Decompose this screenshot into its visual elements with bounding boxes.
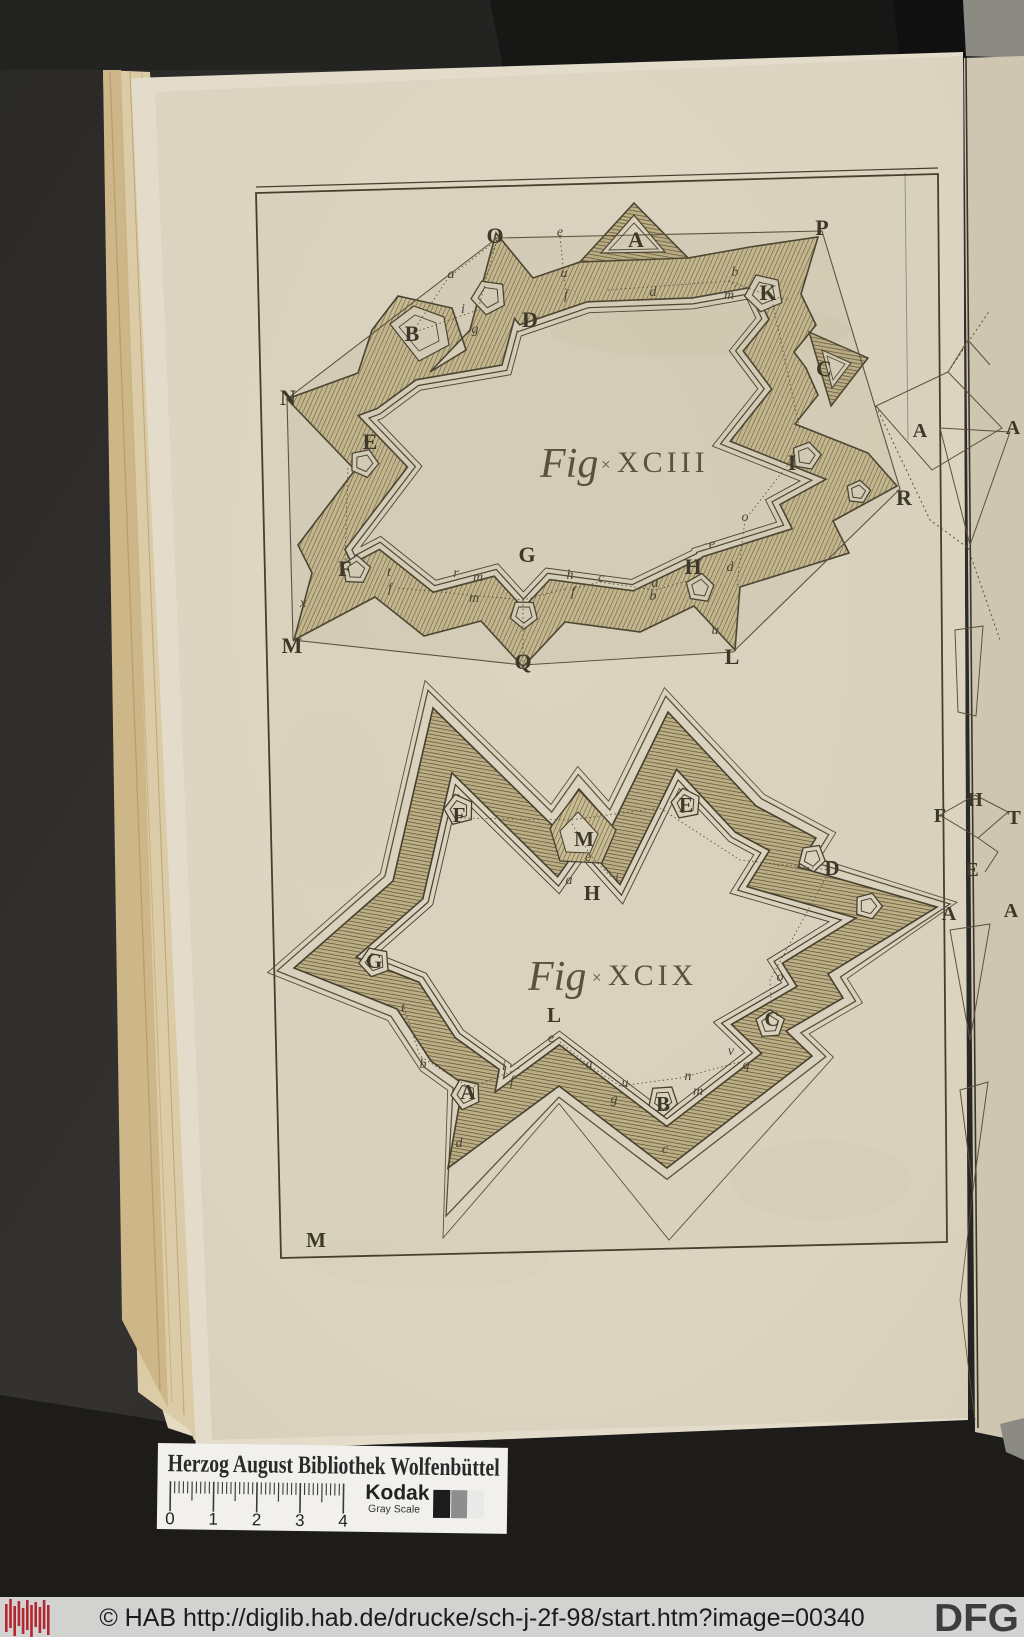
- svg-text:P: P: [815, 215, 828, 240]
- svg-text:XCIX: XCIX: [608, 959, 697, 992]
- svg-text:a: a: [586, 1057, 593, 1072]
- svg-text:H: H: [967, 789, 983, 811]
- svg-text:i: i: [502, 1059, 506, 1074]
- svg-text:b: b: [650, 589, 657, 604]
- svg-text:m: m: [724, 288, 734, 303]
- svg-text:o: o: [777, 970, 784, 985]
- svg-text:N: N: [280, 385, 296, 410]
- svg-text:b: b: [732, 265, 739, 280]
- svg-text:m: m: [469, 591, 479, 606]
- svg-text:m: m: [693, 1084, 703, 1099]
- svg-text:T: T: [1007, 807, 1021, 829]
- svg-text:A: A: [1006, 417, 1021, 439]
- svg-text:F: F: [453, 803, 466, 827]
- svg-text:i: i: [615, 871, 619, 886]
- svg-text:Gray Scale: Gray Scale: [368, 1503, 420, 1516]
- svg-text:g: g: [611, 1092, 618, 1107]
- svg-text:Q: Q: [514, 649, 531, 674]
- svg-text:G: G: [518, 542, 535, 567]
- svg-text:g: g: [472, 322, 479, 337]
- svg-text:1: 1: [208, 1510, 218, 1529]
- svg-text:c: c: [662, 1142, 669, 1157]
- svg-text:x: x: [299, 596, 307, 611]
- svg-text:H: H: [584, 881, 600, 905]
- svg-text:L: L: [725, 644, 740, 669]
- svg-text:A: A: [460, 1080, 476, 1104]
- svg-text:XCIII: XCIII: [617, 446, 709, 479]
- svg-text:E: E: [965, 859, 978, 881]
- svg-text:i: i: [461, 302, 465, 317]
- svg-text:×: ×: [592, 968, 602, 987]
- svg-text:q: q: [743, 1058, 750, 1073]
- svg-text:e: e: [557, 225, 563, 240]
- svg-text:A: A: [1004, 900, 1019, 922]
- svg-text:u: u: [561, 266, 568, 281]
- svg-text:h: h: [567, 568, 574, 583]
- svg-text:C: C: [764, 1007, 779, 1031]
- svg-text:n: n: [685, 1069, 692, 1084]
- svg-text:u: u: [712, 623, 719, 638]
- svg-text:K: K: [759, 280, 776, 305]
- svg-text:u: u: [622, 1076, 629, 1091]
- svg-text:d: d: [650, 285, 658, 300]
- svg-text:0: 0: [165, 1509, 175, 1528]
- svg-text:d: d: [727, 560, 735, 575]
- svg-text:M: M: [306, 1228, 326, 1252]
- svg-text:A: A: [942, 903, 957, 925]
- svg-text:G: G: [366, 949, 382, 973]
- svg-text:×: ×: [601, 455, 611, 474]
- svg-text:F: F: [934, 805, 946, 827]
- svg-text:a: a: [566, 873, 573, 888]
- svg-text:© HAB http://diglib.hab.de/dru: © HAB http://diglib.hab.de/drucke/sch-j-…: [99, 1604, 864, 1632]
- svg-text:H: H: [684, 554, 701, 579]
- svg-text:r: r: [453, 566, 459, 581]
- svg-text:B: B: [405, 321, 420, 346]
- svg-text:Fig: Fig: [527, 954, 586, 1000]
- svg-text:3: 3: [295, 1511, 305, 1530]
- svg-text:D: D: [522, 307, 538, 332]
- svg-text:m: m: [473, 570, 483, 585]
- svg-text:o: o: [742, 510, 749, 525]
- svg-text:a: a: [448, 267, 455, 282]
- svg-text:M: M: [282, 633, 303, 658]
- svg-text:e: e: [709, 537, 715, 552]
- svg-text:Kodak: Kodak: [365, 1481, 430, 1505]
- svg-text:O: O: [486, 223, 503, 248]
- svg-text:L: L: [547, 1003, 561, 1027]
- svg-text:DFG: DFG: [934, 1597, 1019, 1637]
- svg-text:e: e: [548, 1031, 554, 1046]
- svg-text:D: D: [824, 856, 839, 880]
- svg-text:A: A: [913, 420, 928, 442]
- svg-text:R: R: [896, 485, 913, 510]
- svg-text:C: C: [816, 356, 832, 381]
- svg-text:I: I: [788, 450, 797, 475]
- svg-text:b: b: [420, 1057, 427, 1072]
- svg-text:Fig: Fig: [539, 441, 598, 487]
- svg-text:E: E: [679, 793, 693, 817]
- svg-text:M: M: [574, 827, 594, 851]
- svg-text:Herzog August Bibliothek Wolfe: Herzog August Bibliothek Wolfenbüttel: [168, 1450, 500, 1482]
- svg-text:e: e: [585, 850, 591, 865]
- svg-text:2: 2: [252, 1510, 262, 1529]
- svg-text:B: B: [656, 1092, 670, 1116]
- svg-text:d: d: [456, 1136, 464, 1151]
- svg-text:v: v: [728, 1044, 735, 1059]
- svg-text:A: A: [628, 227, 644, 252]
- svg-text:c: c: [598, 571, 605, 586]
- svg-text:4: 4: [338, 1511, 348, 1530]
- svg-text:F: F: [338, 556, 351, 581]
- svg-text:E: E: [363, 429, 378, 454]
